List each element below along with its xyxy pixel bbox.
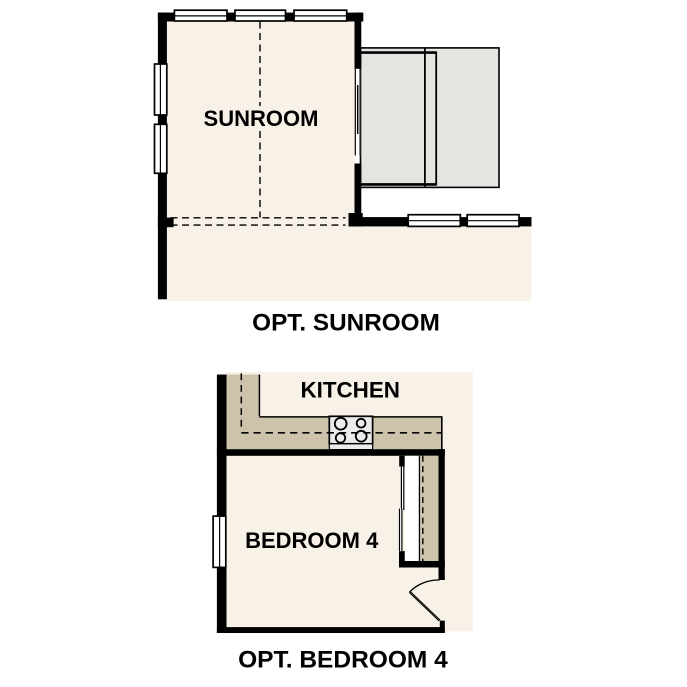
svg-text:BEDROOM 4: BEDROOM 4 xyxy=(245,528,379,553)
svg-text:KITCHEN: KITCHEN xyxy=(300,377,400,402)
svg-text:OPT. BEDROOM 4: OPT. BEDROOM 4 xyxy=(238,646,448,673)
svg-text:SUNROOM: SUNROOM xyxy=(204,106,319,131)
svg-text:OPT. SUNROOM: OPT. SUNROOM xyxy=(252,310,440,337)
